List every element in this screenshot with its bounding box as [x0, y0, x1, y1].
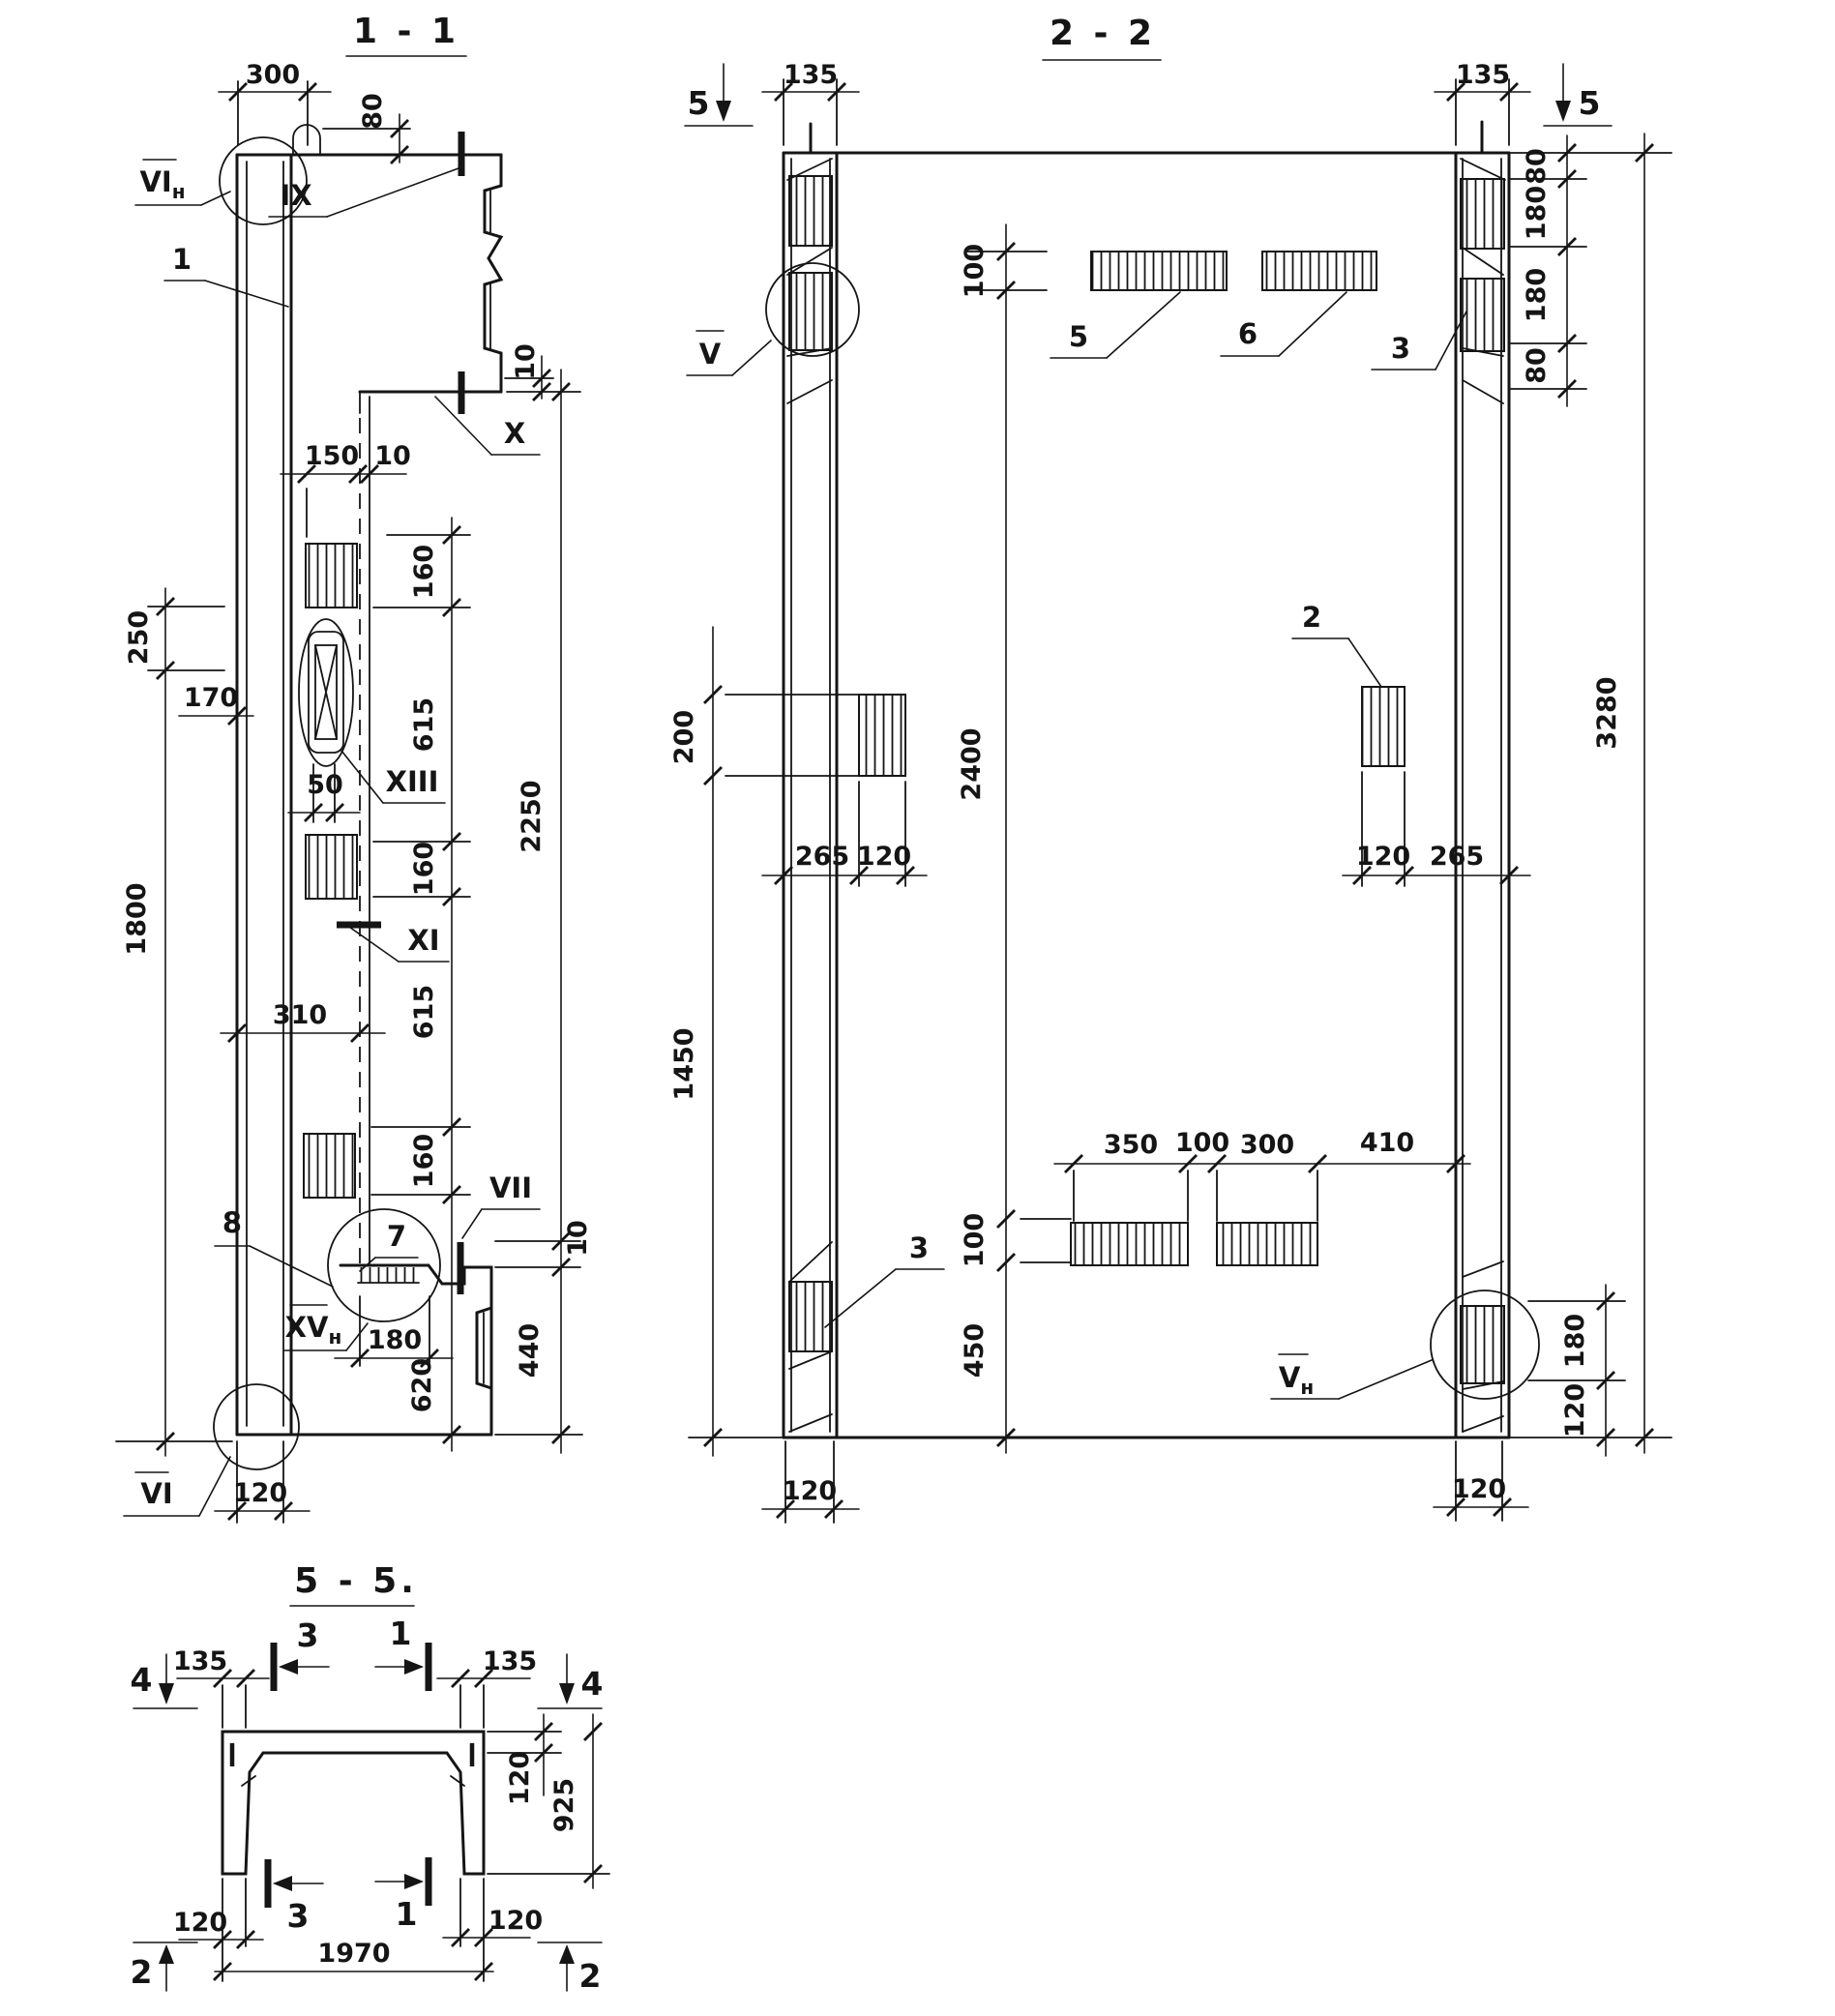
- dim-250: 250: [124, 610, 154, 665]
- dim-10-mid: 10: [374, 441, 411, 471]
- dim-100-bottom: 100: [960, 1213, 990, 1267]
- dim-615-a: 615: [409, 697, 439, 752]
- dim-120-55br: 120: [488, 1906, 543, 1936]
- dim-265-right: 265: [1430, 842, 1484, 872]
- embed-plate-2: [1362, 687, 1405, 766]
- dim-1970: 1970: [317, 1939, 390, 1969]
- dim-1800: 1800: [122, 882, 152, 955]
- dim-410: 410: [1360, 1128, 1414, 1158]
- dim-120-right-mid: 120: [1356, 842, 1410, 872]
- callout-v-n: Vн: [1279, 1361, 1314, 1399]
- dim-80-b: 80: [1522, 347, 1552, 384]
- embed-plate-hatch: [1217, 1223, 1317, 1265]
- dim-120-s11: 120: [233, 1478, 287, 1508]
- section-1-1-title: 1 - 1: [353, 12, 459, 51]
- dim-50: 50: [307, 770, 343, 800]
- embed-plate-hatch: [1071, 1223, 1188, 1265]
- s11-dimensions: 300 80 10 150 10 160: [116, 60, 593, 1523]
- panel-drawing: 1 - 1: [0, 0, 1835, 2016]
- dim-3280: 3280: [1592, 676, 1622, 749]
- dim-170: 170: [184, 683, 238, 713]
- callout-x: X: [504, 417, 525, 450]
- dim-1450: 1450: [669, 1027, 699, 1100]
- callout-2: 2: [1302, 601, 1321, 634]
- dim-10-vii: 10: [563, 1220, 593, 1257]
- section-marker-1-top: 1: [375, 1615, 429, 1691]
- svg-text:3: 3: [297, 1616, 319, 1654]
- embed-plate-hatch: [306, 544, 357, 608]
- callout-5: 5: [1069, 320, 1088, 353]
- detail-circle-vi: [214, 1384, 299, 1469]
- dim-150: 150: [305, 441, 359, 471]
- svg-text:2: 2: [579, 1957, 602, 1995]
- svg-text:2: 2: [131, 1953, 153, 1991]
- dim-160-b: 160: [409, 842, 439, 896]
- embed-plate-hatch: [304, 1134, 355, 1198]
- section-2-2: 2 - 2: [669, 14, 1672, 1523]
- dim-120-br: 120: [1452, 1474, 1506, 1504]
- dim-310: 310: [273, 1000, 327, 1030]
- dim-160-c: 160: [409, 1134, 439, 1188]
- dim-135-55l: 135: [173, 1646, 227, 1676]
- callout-xv-n: XVн: [285, 1311, 342, 1349]
- dim-2250: 2250: [517, 780, 547, 852]
- dim-180: 180: [368, 1325, 422, 1355]
- s11-right-keyways: [485, 155, 501, 392]
- dim-200: 200: [669, 710, 699, 764]
- s55-dimensions: 135 135 3 1 4 4: [131, 1615, 609, 1995]
- callout-3-top: 3: [1391, 332, 1410, 365]
- callout-6: 6: [1238, 317, 1258, 350]
- callout-vi-n: VIн: [139, 165, 185, 203]
- section-1-1: 1 - 1: [116, 12, 593, 1523]
- dim-180-a: 180: [1522, 186, 1552, 240]
- svg-text:1: 1: [396, 1895, 418, 1933]
- dim-925: 925: [549, 1778, 579, 1832]
- section-marker-2-left: 2: [131, 1942, 197, 1991]
- svg-text:5: 5: [1579, 84, 1601, 122]
- callout-vi: VI: [140, 1477, 172, 1510]
- section-marker-5-right: 5: [1544, 64, 1612, 126]
- callout-3-bottom: 3: [909, 1231, 929, 1264]
- drawing-sheet: 1 - 1: [0, 0, 1835, 2016]
- section-marker-5-left: 5: [685, 64, 753, 126]
- svg-text:5: 5: [688, 84, 710, 122]
- rebar-hatch: [1461, 279, 1504, 351]
- dim-300: 300: [246, 60, 300, 90]
- dim-265-left: 265: [795, 842, 849, 872]
- dim-440: 440: [515, 1323, 545, 1378]
- section-marker-3-bottom: 3: [268, 1859, 323, 1935]
- dim-135-right: 135: [1456, 60, 1510, 90]
- dim-180-rb: 180: [1560, 1314, 1590, 1368]
- dim-100-top: 100: [960, 244, 990, 298]
- slot-detail-xiii: [299, 619, 353, 766]
- rebar-hatch: [1461, 179, 1504, 249]
- rebar-hatch: [789, 176, 832, 246]
- callout-1: 1: [172, 243, 192, 276]
- dim-120-slab: 120: [505, 1751, 535, 1805]
- lifting-loop: [293, 125, 320, 155]
- svg-text:4: 4: [131, 1661, 153, 1699]
- callout-xi: XI: [407, 924, 439, 957]
- section-2-2-title: 2 - 2: [1050, 14, 1156, 53]
- embed-plate-hatch: [306, 835, 357, 899]
- embed-plate-5: [1091, 252, 1227, 290]
- dim-120-bl: 120: [783, 1476, 837, 1506]
- dim-80: 80: [358, 93, 388, 130]
- callout-ix: IX: [280, 179, 311, 212]
- callout-v: V: [699, 338, 722, 371]
- s22-panel-geometry: [766, 122, 1539, 1438]
- callout-8: 8: [222, 1206, 242, 1239]
- section-marker-2-right: 2: [538, 1942, 602, 1995]
- dim-120-55bl: 120: [173, 1908, 227, 1938]
- dim-450: 450: [960, 1323, 990, 1378]
- dim-120-left-mid: 120: [857, 842, 911, 872]
- dim-10-top: 10: [511, 343, 541, 380]
- rebar-hatch: [789, 1282, 832, 1351]
- dim-160-a: 160: [409, 545, 439, 599]
- s11-wall-geometry: [214, 125, 501, 1469]
- embed-plate-6: [1262, 252, 1376, 290]
- callout-7: 7: [387, 1220, 406, 1253]
- section-marker-3-top: 3: [274, 1616, 329, 1691]
- dim-615-b: 615: [409, 985, 439, 1039]
- dim-300: 300: [1240, 1130, 1294, 1160]
- svg-text:3: 3: [287, 1897, 310, 1935]
- svg-text:1: 1: [390, 1615, 412, 1652]
- rebar-hatch: [1461, 1306, 1504, 1383]
- section-marker-1-bottom: 1: [375, 1857, 429, 1933]
- section-5-5-title: 5 - 5.: [294, 1561, 418, 1601]
- s55-channel-geometry: [222, 1732, 484, 1874]
- rebar-hatch: [789, 273, 832, 350]
- dim-135-left: 135: [784, 60, 838, 90]
- dim-135-55r: 135: [483, 1646, 537, 1676]
- dim-100-b: 100: [1175, 1128, 1229, 1158]
- section-5-5: 5 - 5. 135 135 3 1: [131, 1561, 609, 1995]
- dim-120-rb: 120: [1560, 1383, 1590, 1438]
- dim-350: 350: [1104, 1130, 1158, 1160]
- callout-vii: VII: [489, 1171, 532, 1204]
- dim-180-b: 180: [1522, 268, 1552, 322]
- svg-text:4: 4: [581, 1665, 604, 1703]
- callout-xiii: XIII: [386, 765, 439, 798]
- dim-2400: 2400: [957, 727, 987, 800]
- embed-plate-hatch: [859, 695, 905, 776]
- section-marker-4-right: 4: [538, 1654, 603, 1708]
